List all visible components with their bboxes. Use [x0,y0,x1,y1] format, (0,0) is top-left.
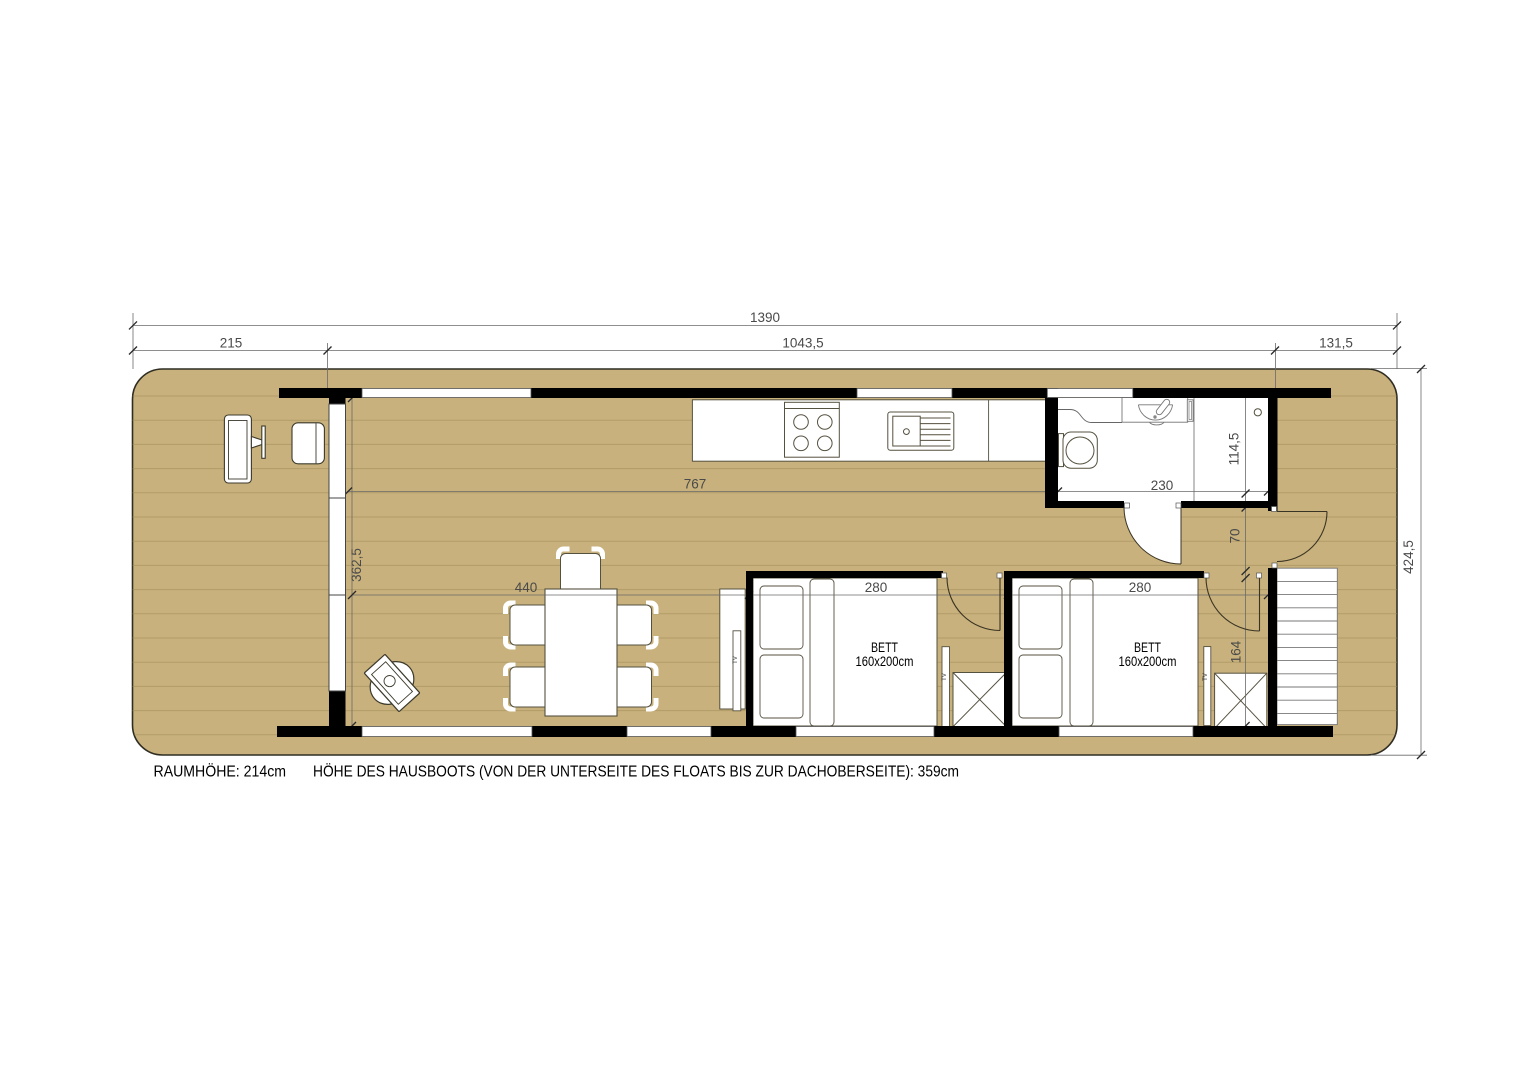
svg-text:164: 164 [1229,640,1244,663]
svg-text:TV: TV [942,673,948,681]
svg-text:280: 280 [1129,580,1152,595]
svg-text:160x200cm: 160x200cm [856,654,914,669]
svg-text:1043,5: 1043,5 [782,336,823,351]
svg-text:114,5: 114,5 [1227,433,1242,466]
svg-text:BETT: BETT [1134,640,1161,655]
svg-text:RAUMHÖHE: 214cm: RAUMHÖHE: 214cm [154,763,287,781]
svg-text:HÖHE DES HAUSBOOTS (VON DER UN: HÖHE DES HAUSBOOTS (VON DER UNTERSEITE D… [313,763,959,781]
svg-text:362,5: 362,5 [349,548,364,582]
svg-text:280: 280 [865,580,888,595]
svg-text:TV: TV [733,656,739,664]
svg-text:767: 767 [684,477,707,492]
svg-text:70: 70 [1228,528,1243,543]
svg-text:1390: 1390 [750,310,780,325]
svg-text:BETT: BETT [871,640,898,655]
svg-text:131,5: 131,5 [1319,336,1353,351]
svg-text:TV: TV [1203,673,1209,681]
svg-text:440: 440 [515,580,538,595]
svg-text:160x200cm: 160x200cm [1119,654,1177,669]
svg-text:230: 230 [1151,478,1174,493]
svg-text:424,5: 424,5 [1401,540,1416,574]
svg-text:215: 215 [220,336,243,351]
